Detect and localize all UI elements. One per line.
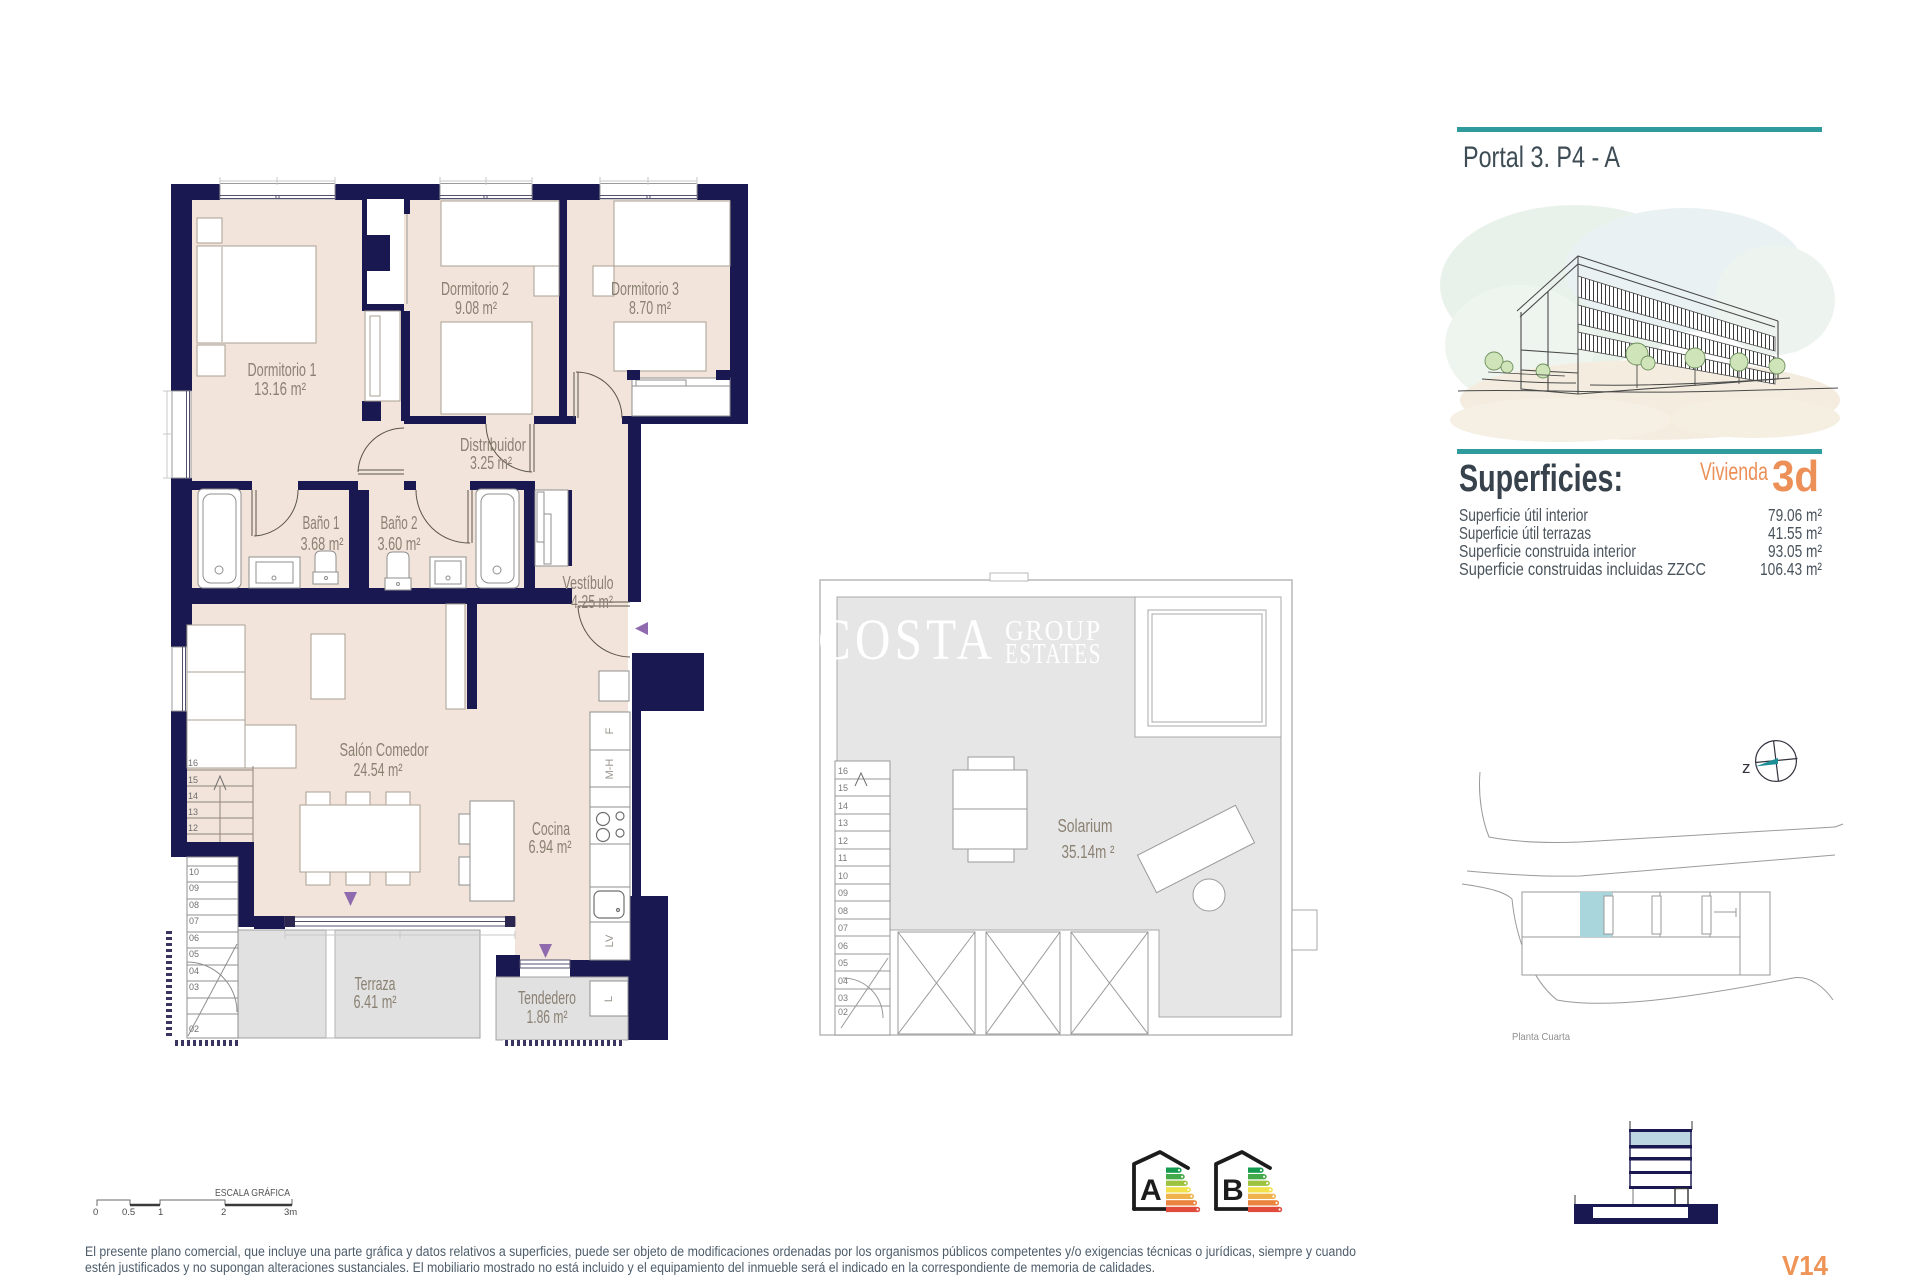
svg-text:02: 02: [838, 1007, 848, 1017]
svg-text:Vivienda: Vivienda: [1700, 458, 1768, 486]
svg-text:35.14m ²: 35.14m ²: [1062, 842, 1115, 862]
svg-text:06: 06: [189, 933, 199, 943]
svg-text:Dormitorio 3: Dormitorio 3: [611, 279, 679, 299]
svg-text:09: 09: [838, 888, 848, 898]
svg-text:Superficie construidas incluid: Superficie construidas incluidas ZZCC: [1459, 559, 1706, 579]
svg-text:9.08 m²: 9.08 m²: [455, 298, 497, 318]
svg-text:04: 04: [189, 966, 199, 976]
svg-text:10: 10: [189, 867, 199, 877]
svg-text:Superficie construida interior: Superficie construida interior: [1459, 541, 1636, 561]
svg-text:1.86 m²: 1.86 m²: [527, 1007, 568, 1027]
svg-text:07: 07: [838, 923, 848, 933]
svg-text:Terraza: Terraza: [355, 974, 397, 994]
svg-text:M-H: M-H: [604, 759, 616, 780]
svg-text:F: F: [604, 727, 616, 734]
svg-text:0: 0: [93, 1207, 98, 1218]
svg-text:Planta Cuarta: Planta Cuarta: [1512, 1031, 1570, 1043]
svg-text:79.06 m²: 79.06 m²: [1768, 505, 1822, 525]
svg-text:07: 07: [189, 916, 199, 926]
svg-text:3m: 3m: [284, 1207, 297, 1218]
svg-text:14: 14: [838, 801, 848, 811]
svg-text:02: 02: [189, 1024, 199, 1034]
svg-text:03: 03: [838, 993, 848, 1003]
svg-text:106.43 m²: 106.43 m²: [1760, 559, 1822, 579]
svg-text:24.54 m²: 24.54 m²: [354, 760, 403, 780]
svg-text:03: 03: [189, 982, 199, 992]
svg-text:ESCALA GRÁFICA: ESCALA GRÁFICA: [215, 1186, 290, 1199]
svg-text:4.25 m²: 4.25 m²: [571, 592, 613, 612]
svg-text:12: 12: [838, 836, 848, 846]
svg-text:Solarium: Solarium: [1058, 816, 1113, 836]
svg-text:16: 16: [188, 758, 198, 768]
svg-text:2: 2: [221, 1207, 226, 1218]
svg-text:Baño 2: Baño 2: [381, 513, 418, 533]
svg-text:Distribuidor: Distribuidor: [460, 435, 526, 455]
svg-text:13: 13: [188, 807, 198, 817]
svg-text:El presente plano comercial, q: El presente plano comercial, que incluye…: [85, 1244, 1356, 1259]
svg-text:3d: 3d: [1772, 452, 1819, 501]
svg-text:0.5: 0.5: [122, 1207, 135, 1218]
svg-text:15: 15: [188, 775, 198, 785]
svg-text:Tendedero: Tendedero: [518, 988, 576, 1008]
svg-text:L: L: [603, 996, 615, 1002]
svg-text:z: z: [1742, 758, 1751, 777]
svg-text:Dormitorio 2: Dormitorio 2: [441, 279, 509, 299]
svg-text:Salón Comedor: Salón Comedor: [340, 740, 429, 760]
svg-text:05: 05: [189, 949, 199, 959]
svg-text:LV: LV: [604, 934, 616, 947]
svg-text:11: 11: [838, 853, 847, 863]
svg-text:ESTATES: ESTATES: [1005, 639, 1102, 670]
svg-text:14: 14: [188, 791, 198, 801]
svg-text:B: B: [1222, 1174, 1244, 1207]
svg-text:05: 05: [838, 958, 848, 968]
svg-text:COSTA: COSTA: [818, 607, 996, 672]
svg-text:6.41 m²: 6.41 m²: [354, 992, 397, 1012]
svg-text:10: 10: [838, 871, 848, 881]
svg-text:Superficies:: Superficies:: [1459, 458, 1623, 500]
svg-text:15: 15: [838, 783, 848, 793]
svg-text:estén justificados y no supong: estén justificados y no supongan alterac…: [85, 1260, 1155, 1275]
svg-text:09: 09: [189, 883, 199, 893]
svg-text:12: 12: [188, 823, 198, 833]
svg-text:Portal 3. P4 - A: Portal 3. P4 - A: [1463, 141, 1620, 174]
svg-text:1: 1: [158, 1207, 163, 1218]
svg-text:Cocina: Cocina: [532, 819, 571, 839]
svg-text:93.05 m²: 93.05 m²: [1768, 541, 1822, 561]
svg-text:Baño 1: Baño 1: [303, 513, 340, 533]
svg-text:3.68 m²: 3.68 m²: [301, 534, 344, 554]
svg-text:Superficie útil interior: Superficie útil interior: [1459, 505, 1588, 525]
svg-text:3.60 m²: 3.60 m²: [378, 534, 421, 554]
svg-text:13.16 m²: 13.16 m²: [254, 379, 306, 399]
svg-text:3.25 m²: 3.25 m²: [470, 453, 512, 473]
svg-text:8.70 m²: 8.70 m²: [629, 298, 671, 318]
svg-text:A: A: [1140, 1174, 1162, 1207]
svg-text:13: 13: [838, 818, 848, 828]
svg-text:04: 04: [838, 976, 848, 986]
svg-text:16: 16: [838, 766, 848, 776]
svg-text:V14: V14: [1782, 1250, 1828, 1280]
svg-text:06: 06: [838, 941, 848, 951]
svg-text:6.94 m²: 6.94 m²: [529, 837, 572, 857]
svg-text:Dormitorio 1: Dormitorio 1: [248, 360, 317, 380]
svg-text:08: 08: [189, 900, 199, 910]
svg-text:08: 08: [838, 906, 848, 916]
svg-text:41.55 m²: 41.55 m²: [1768, 523, 1822, 543]
svg-text:Superficie útil terrazas: Superficie útil terrazas: [1459, 523, 1591, 543]
svg-text:Vestíbulo: Vestíbulo: [563, 573, 614, 593]
